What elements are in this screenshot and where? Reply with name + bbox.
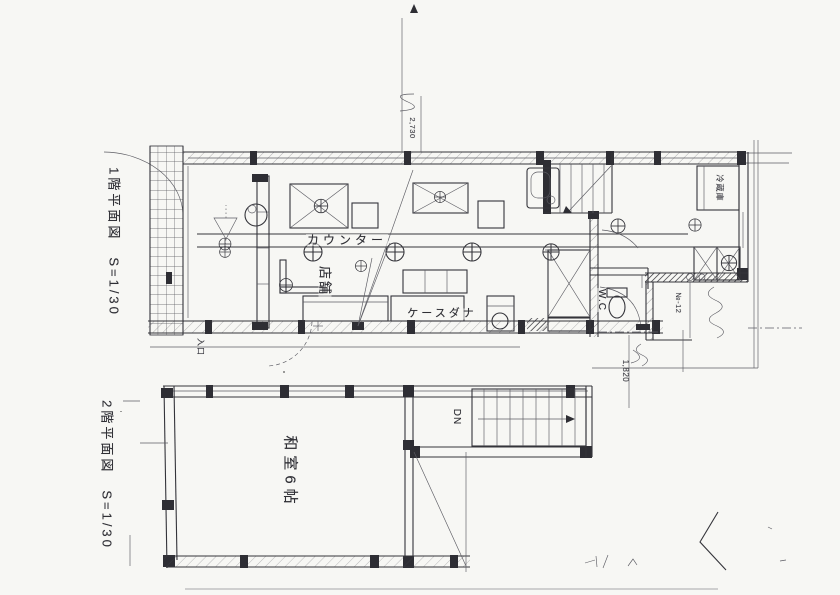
speaker-icon [214, 218, 237, 239]
leader-lines [267, 170, 413, 366]
side-note: №-12 [674, 292, 682, 315]
roof-diagonal [414, 452, 466, 572]
benchmark-triangle-icon [410, 4, 418, 13]
entrance-note: 入口 [196, 337, 204, 357]
stairs-down-label: DN [451, 408, 461, 426]
shop-fixtures [214, 174, 269, 330]
closet [527, 250, 590, 331]
counter [197, 234, 740, 293]
note-lines [598, 330, 683, 408]
second-floor-plan [123, 385, 592, 572]
counter-label: カウンター [306, 234, 388, 246]
first-floor-plan [104, 4, 802, 408]
top-dimension-note: 2,730 [408, 116, 416, 139]
shop-label: 店舗 [319, 265, 332, 297]
chevron-pen-mark [700, 512, 726, 570]
toilet-icon [609, 296, 625, 318]
tile-entrance-strip [150, 146, 183, 335]
wc-label: W.C [596, 288, 606, 312]
lower-dimension-note: 1,820 [621, 359, 629, 384]
display-case-label: ケースダナ [406, 309, 477, 320]
tables [290, 183, 504, 228]
tatami-room-label: 和室6帖 [283, 434, 298, 509]
stair-direction-arrow [566, 415, 575, 423]
scanned-floor-plan-sheet: 1階平面図 S=1/30 カウンター 店舗 ケースダナ W.C 冷蔵庫 入口 2… [0, 0, 840, 595]
pipe-squiggle [708, 287, 723, 338]
floor-plan-drawing [0, 0, 840, 595]
title-marks [123, 401, 140, 566]
first-floor-title: 1階平面図 S=1/30 [108, 166, 121, 318]
second-floor-walls [140, 385, 592, 568]
second-floor-title: 2階平面図 S=1/30 [101, 399, 114, 551]
refrigerator-label: 冷蔵庫 [715, 174, 723, 203]
